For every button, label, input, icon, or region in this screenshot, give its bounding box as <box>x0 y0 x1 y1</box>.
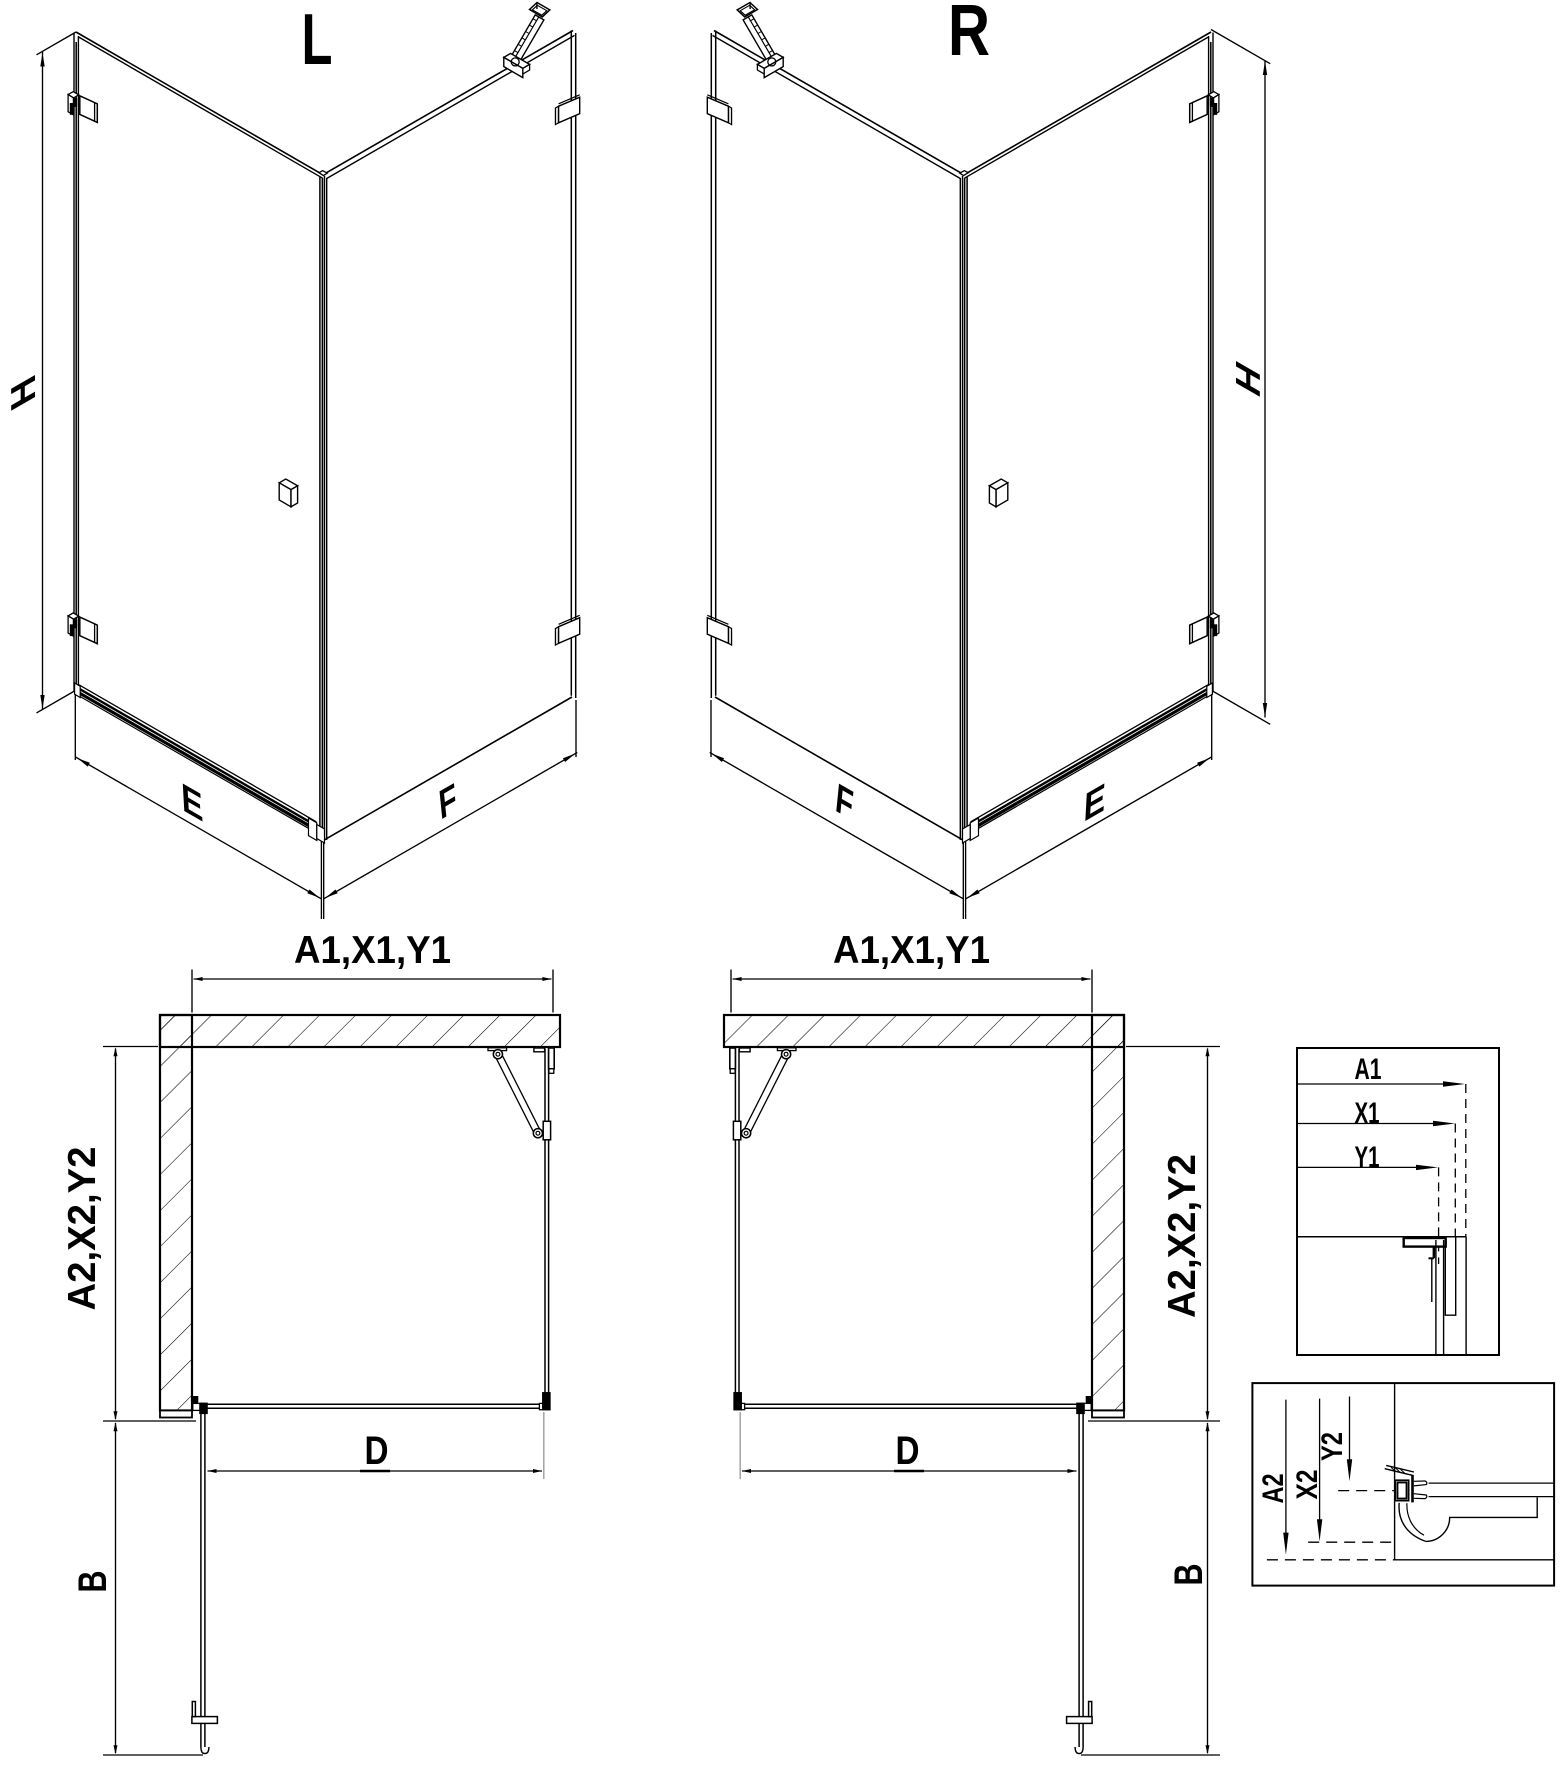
svg-text:A1,X1,Y1: A1,X1,Y1 <box>294 929 451 972</box>
svg-text:A1: A1 <box>1355 1053 1382 1086</box>
svg-text:D: D <box>896 1429 920 1473</box>
svg-text:R: R <box>948 0 990 71</box>
svg-text:D: D <box>365 1429 389 1473</box>
svg-text:A2: A2 <box>1257 1474 1290 1504</box>
svg-text:B: B <box>71 1571 115 1593</box>
svg-text:Y2: Y2 <box>1316 1432 1349 1461</box>
svg-text:X1: X1 <box>1355 1097 1380 1130</box>
svg-text:A2,X2,Y2: A2,X2,Y2 <box>61 1147 104 1311</box>
svg-text:L: L <box>302 0 333 80</box>
svg-text:A1,X1,Y1: A1,X1,Y1 <box>833 929 990 972</box>
svg-text:Y1: Y1 <box>1355 1141 1380 1174</box>
svg-text:A2,X2,Y2: A2,X2,Y2 <box>1161 1154 1204 1318</box>
svg-text:B: B <box>1167 1564 1211 1586</box>
